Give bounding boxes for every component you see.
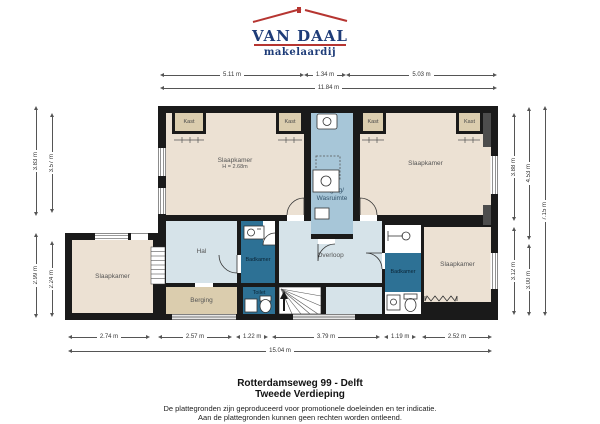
dim-bottom-3: 1.22 m <box>236 333 268 341</box>
dim-bottom-1: 2.74 m <box>68 333 150 341</box>
room-slaapkamer-annex: Slaapkamer <box>72 240 153 313</box>
room-badkamer-right: Badkamer <box>385 225 421 314</box>
room-toilet: Toilet <box>243 287 275 314</box>
closet-label: Kast <box>183 119 194 125</box>
closet-kast-3: Kast <box>360 113 386 134</box>
room-hal: Hal <box>166 221 237 283</box>
dim-top-total: 11.84 m <box>160 84 497 92</box>
room-label: Berging <box>190 297 212 305</box>
room-label: Slaapkamer <box>408 160 443 168</box>
dim-left-inner-1: 3.57 m <box>47 113 57 213</box>
shaft-top <box>483 113 491 147</box>
dim-bottom-4: 3.79 m <box>272 333 380 341</box>
room-label: Slaapkamer <box>440 261 475 269</box>
dim-left-outer-1: 3.83 m <box>31 106 41 216</box>
floor-title: Tweede Verdieping <box>0 389 600 400</box>
dim-bottom-total: 15.04 m <box>68 347 492 355</box>
room-label: Badkamer <box>390 269 415 277</box>
dim-right-mid-2: 3.00 m <box>524 244 534 316</box>
address-title: Rotterdamseweg 99 - Delft <box>0 378 600 389</box>
disclaimer-line-1: De plattegronden zijn geproduceerd voor … <box>0 404 600 413</box>
room-slaapkamer-bottomright: Slaapkamer <box>424 227 491 302</box>
room-label: Badkamer <box>245 257 270 265</box>
floorplan-page: VAN DAAL makelaardij Slaapkamer H = 2.68… <box>0 0 600 424</box>
roof-icon <box>245 6 355 24</box>
room-label: Slaapkamer <box>218 157 253 165</box>
room-berging-wasruimte: Berging/ Wasruimte <box>311 113 353 239</box>
dim-bottom-6: 2.52 m <box>422 333 492 341</box>
closet-label: Kast <box>367 119 378 125</box>
room-label-line1: Berging/ <box>320 187 344 195</box>
dim-bottom-2: 2.57 m <box>158 333 232 341</box>
dim-left-inner-2: 2.24 m <box>47 241 57 317</box>
agency-logo: VAN DAAL makelaardij <box>235 6 365 58</box>
title-block: Rotterdamseweg 99 - Delft Tweede Verdiep… <box>0 378 600 422</box>
shower-area <box>385 225 421 253</box>
room-height-note: H = 2.68m <box>222 164 248 172</box>
dim-right-total: 7.15 m <box>540 106 550 316</box>
room-label: Overloop <box>317 252 343 260</box>
badkamer-right-core: Badkamer <box>385 253 421 292</box>
dim-top-3: 5.03 m <box>346 71 497 79</box>
dim-top-1: 5.11 m <box>160 71 304 79</box>
closet-kast-2: Kast <box>276 113 304 134</box>
room-label-line2: Wasruimte <box>317 195 348 203</box>
room-label: Toilet <box>253 290 266 298</box>
dim-bottom-5: 1.19 m <box>384 333 418 341</box>
room-berging: Berging <box>166 287 237 314</box>
room-label: Hal <box>197 248 207 256</box>
room-overloop-lower <box>326 287 382 314</box>
closet-label: Kast <box>464 119 475 125</box>
room-badkamer-mid: Badkamer <box>241 221 275 283</box>
logo-title: VAN DAAL <box>235 29 365 43</box>
logo-subtitle: makelaardij <box>235 47 365 58</box>
closet-label: Kast <box>284 119 295 125</box>
closet-kast-4: Kast <box>456 113 483 134</box>
closet-kast-1: Kast <box>172 113 206 134</box>
dim-right-inner-1: 3.88 m <box>509 113 519 221</box>
fixtures-area <box>385 292 421 314</box>
shaft-mid <box>483 205 491 225</box>
dim-right-inner-2: 3.12 m <box>509 227 519 315</box>
room-label: Slaapkamer <box>95 273 130 281</box>
dim-left-outer-2: 2.99 m <box>31 233 41 318</box>
dim-top-2: 1.34 m <box>304 71 346 79</box>
disclaimer-line-2: Aan de plattegronden kunnen geen rechten… <box>0 413 600 422</box>
dim-right-mid-1: 4.53 m <box>524 107 534 240</box>
